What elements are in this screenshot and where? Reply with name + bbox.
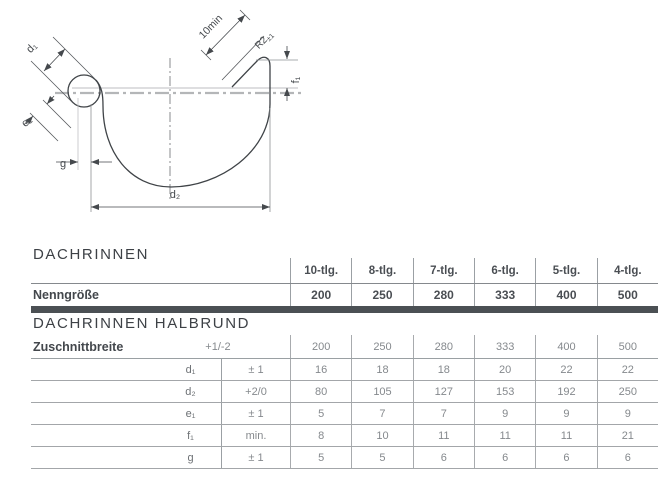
symbol-cell: g	[160, 447, 222, 468]
table-row-d1: d₁ ± 1 16 18 18 20 22 22	[31, 359, 658, 381]
symbol-cell: d₁	[160, 359, 222, 380]
tolerance-cell: ± 1	[222, 408, 290, 420]
value-cell: 250	[351, 335, 412, 358]
tolerance-cell: min.	[222, 430, 290, 442]
value-cell: 200	[290, 335, 351, 358]
e1-rail-2	[30, 113, 58, 141]
value-cell: 5	[290, 403, 351, 424]
e1-arrow-1	[47, 96, 54, 104]
row-label: Zuschnittbreite	[31, 340, 160, 354]
col-header: 10-tlg.	[290, 258, 351, 283]
value-cell: 10	[351, 425, 412, 446]
table-row-f1: f₁ min. 8 10 11 11 11 21	[31, 425, 658, 447]
value-cell: 333	[474, 335, 535, 358]
value-cell: 9	[474, 403, 535, 424]
value-cell: 5	[290, 447, 351, 468]
value-cell: 6	[413, 447, 474, 468]
g-label: g	[60, 158, 66, 170]
value-cell: 127	[413, 381, 474, 402]
d1-rail-1	[53, 37, 95, 79]
d1-label: d₁	[24, 40, 40, 56]
tolerance-cell: +2/0	[222, 386, 290, 398]
value-cell: 192	[535, 381, 596, 402]
value-cell: 153	[474, 381, 535, 402]
table-row-e1: e₁ ± 1 5 7 7 9 9 9	[31, 403, 658, 425]
value-cell: 80	[290, 381, 351, 402]
symbol-cell: d₂	[160, 381, 222, 402]
divider-bar	[31, 306, 658, 313]
value-cell: 11	[535, 425, 596, 446]
table-dachrinnen: 10-tlg. 8-tlg. 7-tlg. 6-tlg. 5-tlg. 4-tl…	[31, 258, 658, 469]
tolerance-cell: ± 1	[222, 364, 290, 376]
value-cell: 9	[535, 403, 596, 424]
symbol-cell: f₁	[160, 425, 222, 446]
value-cell: 22	[597, 359, 658, 380]
value-cell: 6	[474, 447, 535, 468]
value-cell: 7	[413, 403, 474, 424]
d1-dimension-line	[44, 49, 65, 71]
column-header-row: 10-tlg. 8-tlg. 7-tlg. 6-tlg. 5-tlg. 4-tl…	[31, 258, 658, 284]
row-label: Nenngröße	[31, 288, 290, 302]
value-cell: 16	[290, 359, 351, 380]
table-row-g: g ± 1 5 5 6 6 6 6	[31, 447, 658, 469]
value-cell: 500	[597, 284, 658, 306]
gutter-profile	[96, 57, 270, 187]
table-row-d2: d₂ +2/0 80 105 127 153 192 250	[31, 381, 658, 403]
value-cell: 8	[290, 425, 351, 446]
value-cell: 18	[351, 359, 412, 380]
nenngroesse-row: Nenngröße 200 250 280 333 400 500	[31, 284, 658, 306]
value-cell: 9	[597, 403, 658, 424]
col-header: 7-tlg.	[413, 258, 474, 283]
value-cell: 250	[597, 381, 658, 402]
value-cell: 11	[474, 425, 535, 446]
value-cell: 400	[535, 335, 596, 358]
value-cell: 250	[351, 284, 412, 306]
f1-label: f₁	[290, 76, 302, 83]
value-cell: 5	[351, 447, 412, 468]
col-header: 8-tlg.	[351, 258, 412, 283]
symbol-cell: e₁	[160, 403, 222, 424]
col-header: 4-tlg.	[597, 258, 658, 283]
value-cell: 400	[535, 284, 596, 306]
tolerance-cell: +1/-2	[160, 341, 290, 353]
value-cell: 20	[474, 359, 535, 380]
value-cell: 280	[413, 335, 474, 358]
tolerance-cell: ± 1	[222, 452, 290, 464]
value-cell: 280	[413, 284, 474, 306]
radius-label: R2±1	[253, 29, 276, 52]
value-cell: 333	[474, 284, 535, 306]
d2-label: d₂	[170, 189, 180, 201]
value-cell: 22	[535, 359, 596, 380]
d1-rail-2	[31, 61, 73, 103]
value-cell: 500	[597, 335, 658, 358]
value-cell: 6	[535, 447, 596, 468]
value-cell: 6	[597, 447, 658, 468]
value-cell: 18	[413, 359, 474, 380]
fold-min-label: 10min	[197, 12, 226, 41]
e1-rail-1	[43, 100, 71, 128]
value-cell: 200	[290, 284, 351, 306]
value-cell: 7	[351, 403, 412, 424]
value-cell: 105	[351, 381, 412, 402]
col-header: 5-tlg.	[535, 258, 596, 283]
col-header: 6-tlg.	[474, 258, 535, 283]
gutter-cross-section-diagram: d₁ e₁ g d₂ f₁ 10min R2±1	[0, 0, 335, 240]
value-cell: 11	[413, 425, 474, 446]
value-cell: 21	[597, 425, 658, 446]
bead-curl	[68, 75, 100, 107]
zuschnittbreite-row: Zuschnittbreite +1/-2 200 250 280 333 40…	[31, 335, 658, 359]
